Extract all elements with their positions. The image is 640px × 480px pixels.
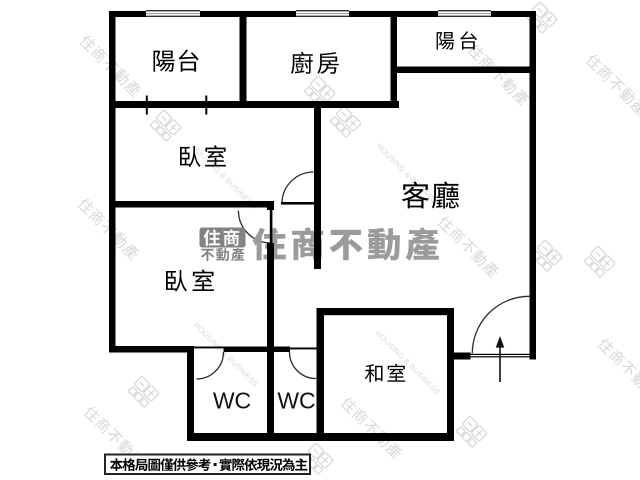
svg-text:WC: WC [213,387,251,413]
svg-text:WC: WC [277,387,315,413]
